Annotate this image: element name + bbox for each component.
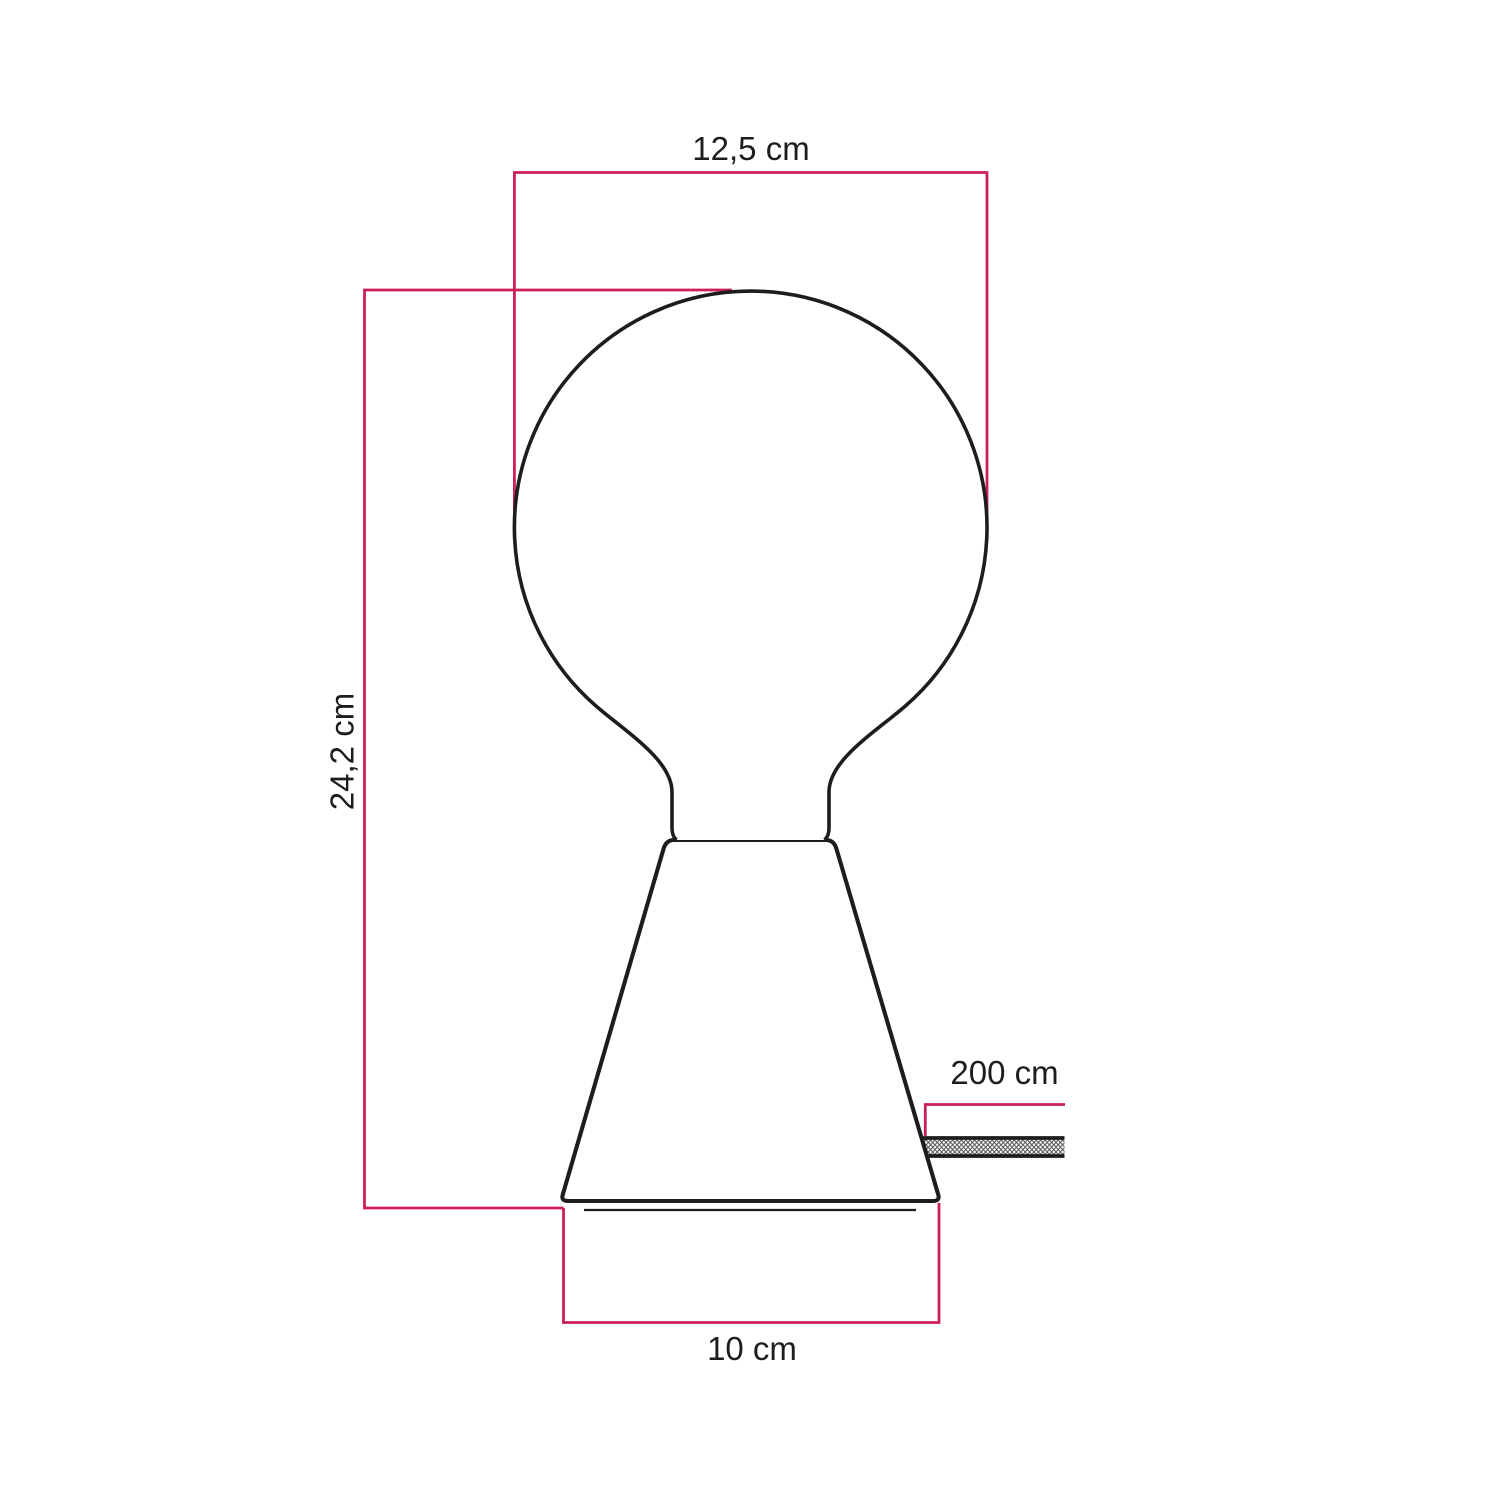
svg-text:24,2 cm: 24,2 cm [324, 693, 361, 810]
svg-text:200 cm: 200 cm [950, 1054, 1058, 1091]
svg-text:10 cm: 10 cm [707, 1330, 797, 1367]
svg-text:12,5 cm: 12,5 cm [692, 130, 809, 167]
